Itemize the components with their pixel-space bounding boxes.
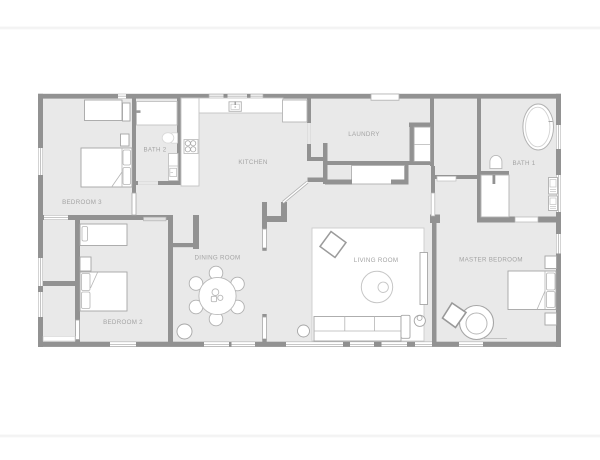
svg-text:BEDROOM 3: BEDROOM 3 xyxy=(62,199,102,206)
svg-text:KITCHEN: KITCHEN xyxy=(238,159,267,166)
svg-text:BATH 1: BATH 1 xyxy=(512,160,535,167)
svg-text:BEDROOM 2: BEDROOM 2 xyxy=(103,319,143,326)
svg-text:LAUNDRY: LAUNDRY xyxy=(348,131,380,138)
svg-text:LIVING ROOM: LIVING ROOM xyxy=(354,257,399,264)
svg-text:BATH 2: BATH 2 xyxy=(143,147,166,154)
svg-text:MASTER BEDROOM: MASTER BEDROOM xyxy=(459,257,523,264)
svg-text:DINING ROOM: DINING ROOM xyxy=(195,255,241,262)
